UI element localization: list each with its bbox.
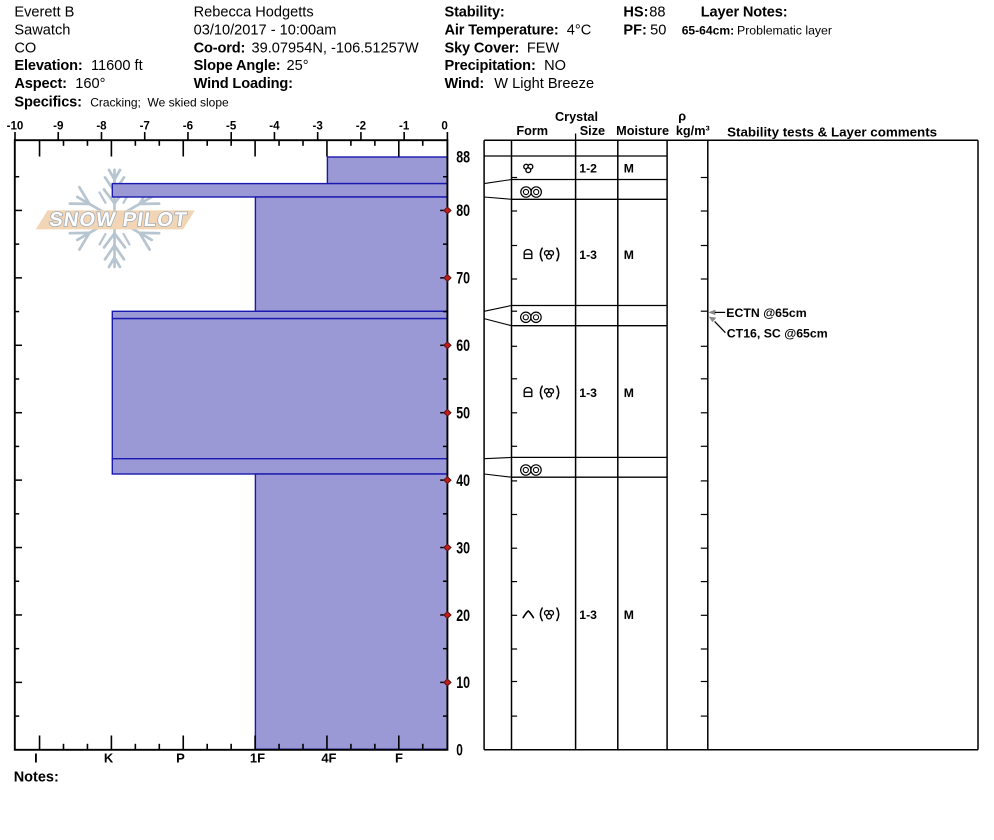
svg-text:4°C: 4°C: [567, 22, 592, 38]
svg-text:Stability:: Stability:: [445, 4, 505, 20]
svg-text:Sawatch: Sawatch: [14, 22, 70, 38]
svg-text:Problematic layer: Problematic layer: [737, 23, 832, 37]
svg-text:K: K: [104, 751, 114, 766]
svg-text:P: P: [176, 751, 185, 766]
svg-text:-7: -7: [140, 120, 150, 133]
svg-text:M: M: [624, 162, 634, 176]
svg-text:1-3: 1-3: [579, 248, 597, 262]
svg-text:50: 50: [456, 405, 470, 423]
svg-text:CO: CO: [14, 40, 36, 56]
svg-text:W Light Breeze: W Light Breeze: [494, 76, 594, 92]
svg-text:HS:: HS:: [623, 4, 648, 20]
svg-text:80: 80: [456, 202, 470, 220]
svg-text:88: 88: [456, 148, 470, 166]
svg-text:Sky Cover:: Sky Cover:: [445, 40, 520, 56]
svg-text:Everett B: Everett B: [14, 4, 74, 20]
svg-text:1-3: 1-3: [579, 386, 597, 400]
svg-text:88: 88: [649, 4, 665, 20]
svg-text:-5: -5: [226, 120, 237, 133]
svg-text:Elevation:: Elevation:: [14, 58, 82, 74]
svg-text:Precipitation:: Precipitation:: [445, 58, 536, 74]
svg-text:PF:: PF:: [623, 22, 647, 38]
svg-text:Aspect:: Aspect:: [14, 76, 66, 92]
svg-text:-1: -1: [399, 120, 410, 133]
svg-text:-3: -3: [313, 120, 324, 133]
svg-text:1F: 1F: [250, 751, 265, 766]
svg-text:Air Temperature:: Air Temperature:: [445, 22, 559, 38]
svg-text:-10: -10: [7, 120, 24, 133]
svg-text:40: 40: [456, 472, 470, 490]
svg-text:I: I: [34, 751, 38, 766]
svg-text:CT16, SC @65cm: CT16, SC @65cm: [727, 327, 828, 341]
svg-text:0: 0: [456, 742, 463, 760]
svg-text:Cracking; We skied slope: Cracking; We skied slope: [90, 95, 229, 109]
svg-text:Notes:: Notes:: [14, 770, 59, 786]
svg-text:M: M: [624, 608, 634, 622]
svg-text:25°: 25°: [287, 58, 309, 74]
svg-text:20: 20: [456, 607, 470, 625]
svg-text:03/10/2017 - 10:00am: 03/10/2017 - 10:00am: [194, 22, 337, 38]
svg-text:-9: -9: [53, 120, 64, 133]
svg-text:65-64cm:: 65-64cm:: [682, 23, 734, 37]
svg-text:kg/m³: kg/m³: [676, 124, 710, 138]
svg-text:ECTN @65cm: ECTN @65cm: [726, 306, 806, 320]
svg-text:11600 ft: 11600 ft: [91, 58, 143, 74]
svg-text:50: 50: [650, 22, 666, 38]
svg-text:M: M: [624, 248, 634, 262]
svg-text:Rebecca Hodgetts: Rebecca Hodgetts: [194, 4, 314, 20]
svg-text:Wind:: Wind:: [445, 76, 485, 92]
svg-text:Crystal: Crystal: [555, 110, 598, 124]
svg-text:Layer Notes:: Layer Notes:: [701, 4, 788, 20]
svg-text:-8: -8: [96, 120, 107, 133]
svg-text:0: 0: [441, 120, 447, 133]
svg-text:30: 30: [456, 539, 470, 557]
svg-text:Specifics:: Specifics:: [14, 94, 81, 110]
svg-text:Wind Loading:: Wind Loading:: [194, 76, 293, 92]
svg-text:-4: -4: [269, 120, 280, 133]
svg-text:-2: -2: [356, 120, 366, 133]
svg-text:FEW: FEW: [527, 40, 560, 56]
svg-text:NO: NO: [544, 58, 566, 74]
svg-text:160°: 160°: [75, 76, 105, 92]
svg-text:10: 10: [456, 674, 470, 692]
svg-text:Stability tests & Layer commen: Stability tests & Layer comments: [727, 126, 937, 140]
svg-text:SNOW PILOT: SNOW PILOT: [48, 209, 189, 231]
svg-text:Moisture: Moisture: [616, 124, 669, 138]
svg-text:60: 60: [456, 337, 470, 355]
svg-text:39.07954N, -106.51257W: 39.07954N, -106.51257W: [252, 40, 419, 56]
svg-text:ρ: ρ: [678, 110, 686, 124]
svg-text:Slope Angle:: Slope Angle:: [194, 58, 281, 74]
svg-text:70: 70: [456, 270, 470, 288]
svg-text:M: M: [624, 386, 634, 400]
svg-text:-6: -6: [183, 120, 194, 133]
svg-text:1-2: 1-2: [579, 162, 597, 176]
svg-text:Co-ord:: Co-ord:: [194, 40, 246, 56]
svg-text:4F: 4F: [321, 751, 336, 766]
svg-text:F: F: [395, 751, 403, 766]
svg-text:Form: Form: [516, 124, 548, 138]
svg-text:1-3: 1-3: [579, 608, 597, 622]
svg-text:Size: Size: [580, 124, 605, 138]
